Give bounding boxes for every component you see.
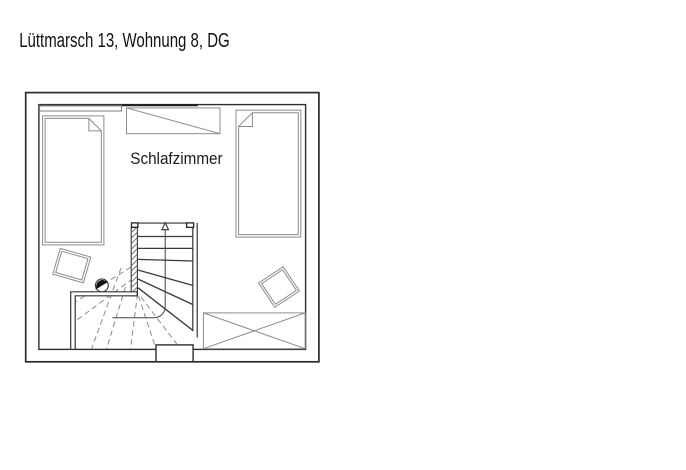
svg-text:Lüttmarsch 13, Wohnung 8, DG: Lüttmarsch 13, Wohnung 8, DG xyxy=(19,30,230,52)
svg-text:Schlafzimmer: Schlafzimmer xyxy=(130,149,223,168)
